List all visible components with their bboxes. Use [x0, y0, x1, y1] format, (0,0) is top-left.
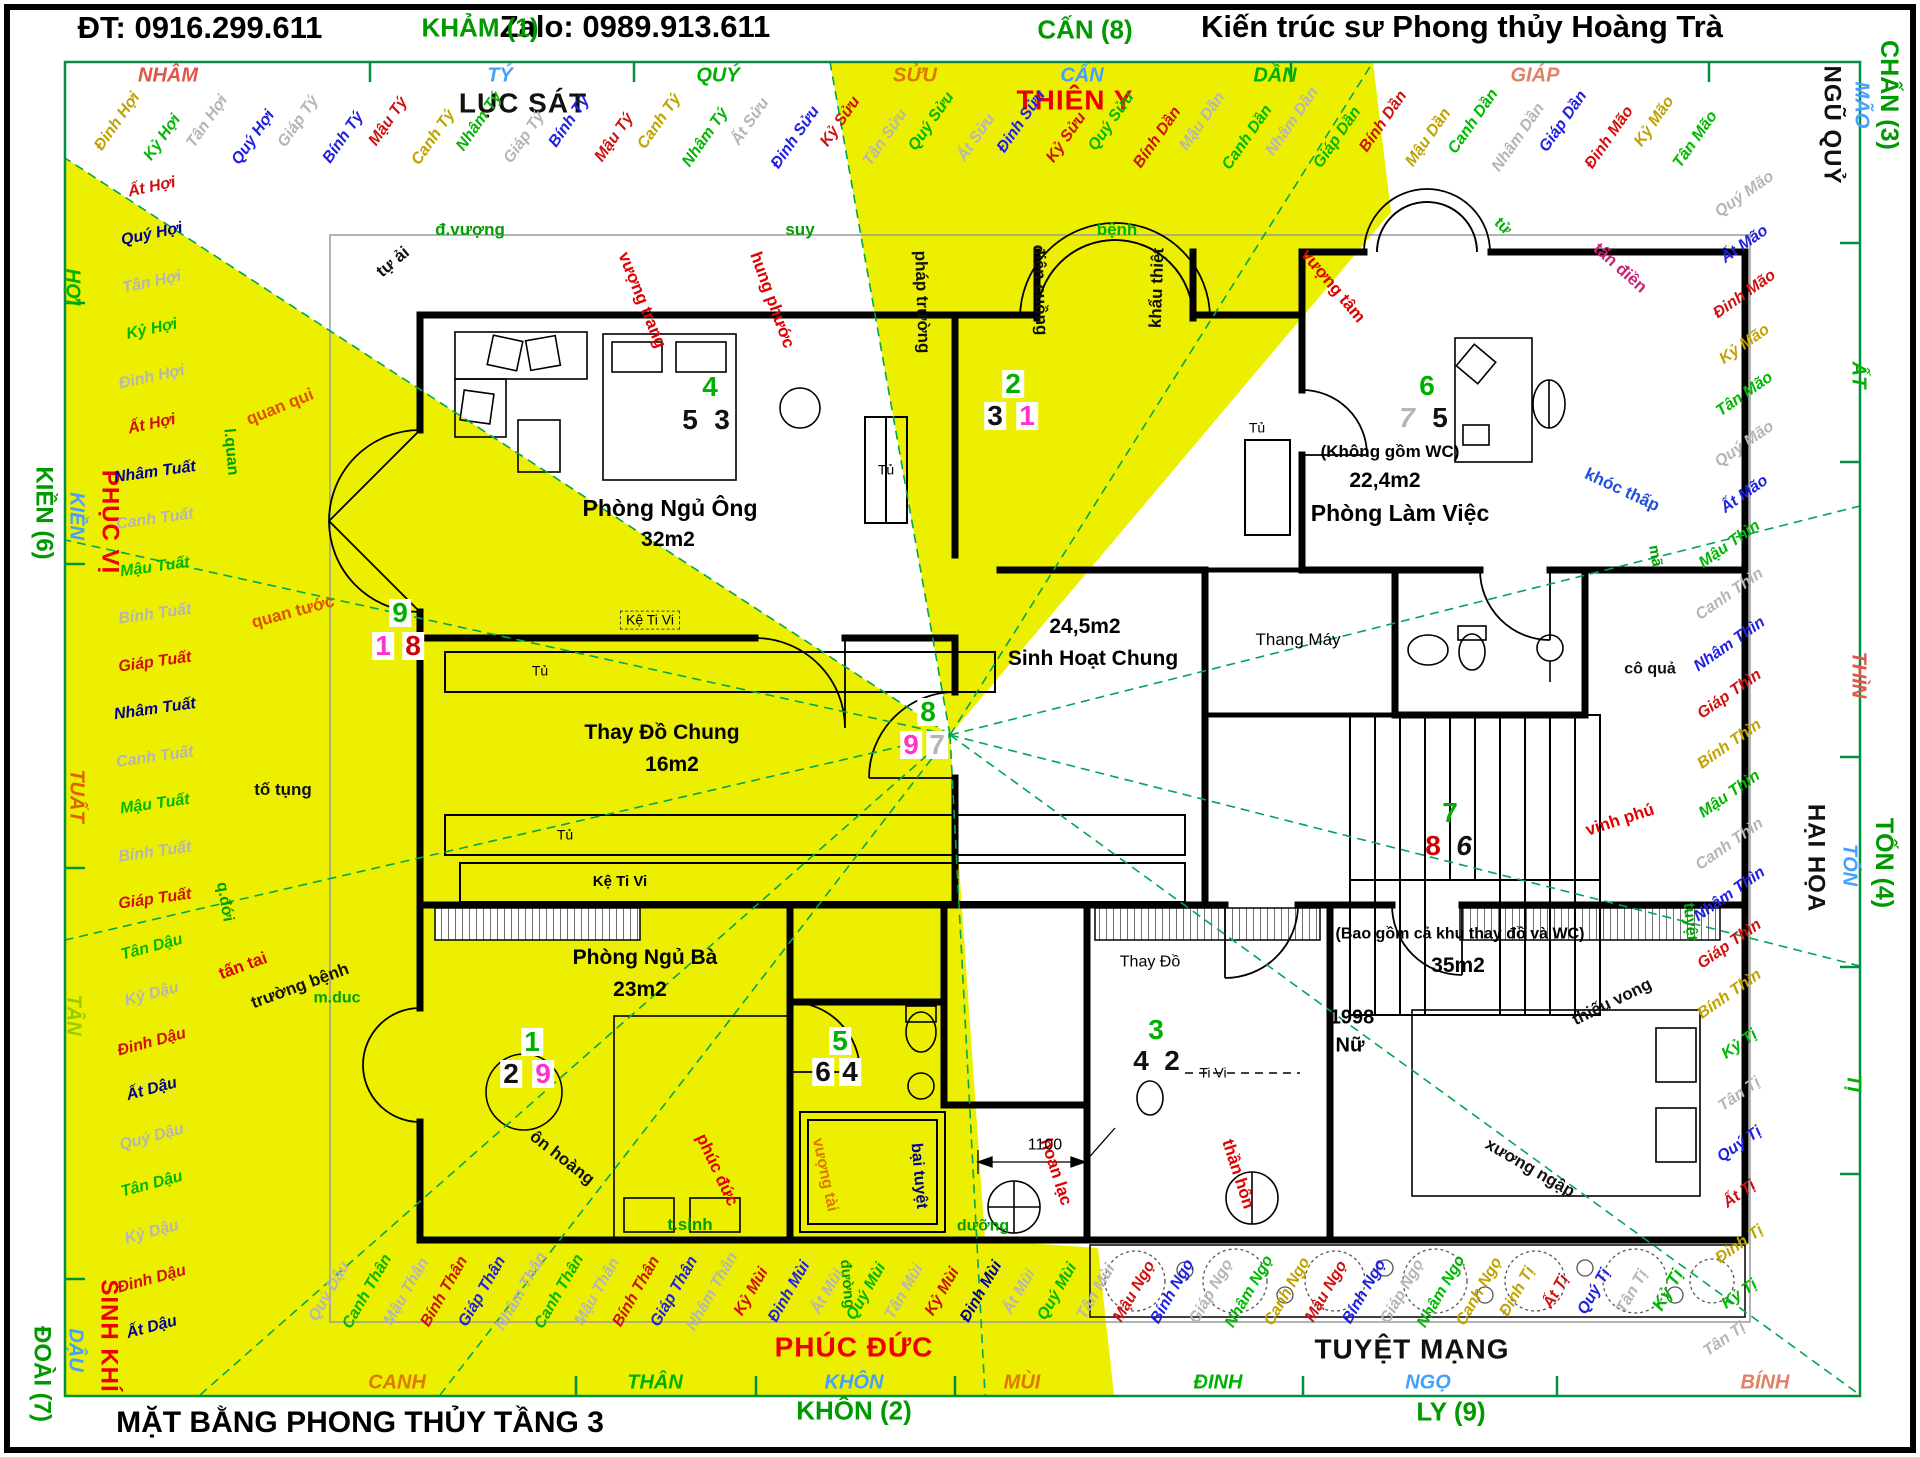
label-173: tố tụng	[254, 781, 312, 799]
label-221: 1100	[1028, 1138, 1062, 1155]
label-22: GIÁP	[1511, 66, 1560, 87]
label-200: 16m2	[645, 754, 699, 776]
label-224: 3	[711, 406, 733, 434]
label-202: 23m2	[613, 979, 667, 1001]
trigram-khon: KHÔN (2)	[796, 1397, 912, 1424]
label-222: 4	[699, 373, 721, 401]
fengshui-floorplan-page: ĐT: 0916.299.611 Zalo: 0989.913.611 Kiến…	[0, 0, 1920, 1457]
label-180: t.sinh	[667, 1216, 712, 1234]
zalo-number: Zalo: 0989.913.611	[500, 9, 771, 45]
label-34: THÂN	[627, 1373, 683, 1394]
sector-phuc-duc: PHÚC ĐỨC	[775, 1332, 934, 1361]
label-29: KIỀN	[66, 492, 87, 540]
label-244: 6	[812, 1058, 834, 1086]
label-233: 8	[402, 632, 424, 660]
label-231: 9	[389, 599, 411, 627]
label-1998: 1998	[1330, 1008, 1375, 1029]
floorplan-graphics	[0, 0, 1920, 1457]
label-26: TỐN	[1839, 844, 1860, 886]
label-246: 3	[1148, 1016, 1164, 1044]
label-225: 2	[1002, 370, 1024, 398]
trigram-can: CẤN (8)	[1037, 16, 1132, 43]
page-title: MẶT BẰNG PHONG THỦY TẦNG 3	[116, 1406, 604, 1440]
label-248: 2	[1164, 1047, 1180, 1075]
trigram-chan: CHẤN (3)	[1876, 40, 1902, 150]
label-25: THÌN	[1848, 652, 1869, 699]
trigram-doai: ĐOÀI (7)	[29, 1326, 54, 1422]
label-237: 7	[1442, 799, 1458, 827]
label-36: MÙI	[1004, 1373, 1041, 1394]
label-227: 1	[1016, 402, 1038, 430]
label-245: 4	[839, 1058, 861, 1086]
label-213: Nữ	[1336, 1036, 1365, 1057]
trigram-kien: KIỀN (6)	[31, 466, 56, 559]
label-161: đ.vượng	[435, 221, 505, 239]
label-206: 22,4m2	[1349, 470, 1420, 492]
label-33: CANH	[368, 1373, 426, 1394]
label-21: DẦN	[1253, 66, 1296, 87]
label-238: 8	[1425, 832, 1441, 860]
label-166: pháp trường	[911, 250, 932, 353]
label-236: 7	[926, 731, 948, 759]
label-239: 6	[1456, 832, 1472, 860]
label-219: Kệ Ti Vi	[620, 611, 680, 630]
label-38: NGỌ	[1405, 1373, 1451, 1394]
label-229: 7	[1399, 404, 1415, 432]
label-27: TỊ	[1843, 1074, 1864, 1092]
label-203: 24,5m2	[1049, 616, 1120, 638]
label-171: l.quan	[220, 428, 241, 476]
label-163: suy	[785, 221, 814, 239]
label-217: Tủ	[878, 463, 894, 478]
label-218: Tủ	[1249, 421, 1265, 436]
label-242: 9	[532, 1060, 554, 1088]
label-234: 8	[917, 698, 939, 726]
label-214: Ti Vi	[1199, 1066, 1226, 1081]
label-240: 1	[521, 1028, 543, 1056]
label-210: (Bao gồm cả khu thay đồ và WC)	[1336, 927, 1585, 944]
label-230: 5	[1432, 404, 1448, 432]
label-205: (Không gồm WC)	[1321, 443, 1460, 461]
label-232: 1	[372, 632, 394, 660]
label-37: ĐINH	[1194, 1373, 1243, 1394]
label-39: BÍNH	[1741, 1373, 1790, 1394]
trigram-ly: LY (9)	[1416, 1398, 1485, 1425]
label-183: đường	[837, 1259, 857, 1309]
label-241: 2	[500, 1060, 522, 1088]
label-211: 35m2	[1431, 955, 1485, 977]
room-phong-lam-viec: Phòng Làm Việc	[1311, 501, 1490, 525]
label-168: điên cuồng	[1030, 244, 1051, 335]
label-243: 5	[829, 1027, 851, 1055]
label-226: 3	[984, 402, 1006, 430]
room-thang-may: Thang Máy	[1255, 631, 1340, 649]
label-215: Tủ	[532, 664, 548, 679]
label-35: KHÔN	[825, 1373, 884, 1394]
label-16: NHÂM	[138, 66, 198, 87]
label-177: m.duc	[313, 991, 360, 1008]
label-184: dưỡng	[957, 1219, 1009, 1236]
sector-sinh-khi: SINH KHÍ	[96, 1279, 121, 1392]
room-thay-do-chung: Thay Đồ Chung	[584, 722, 739, 744]
label-235: 9	[900, 731, 922, 759]
sector-tuyet-mang: TUYỆT MẠNG	[1314, 1334, 1509, 1363]
room-phong-ngu-ong: Phòng Ngủ Ông	[582, 496, 757, 520]
room-thay-do: Thay Đồ	[1120, 955, 1180, 972]
label-169: khẩu thiệt	[1147, 248, 1168, 329]
label-28: HỢI	[62, 269, 83, 306]
label-196: mã	[1645, 544, 1664, 568]
label-31: TÂN	[63, 994, 84, 1035]
sector-hai-hoa: HẠI HỌA	[1803, 804, 1828, 912]
label-17: TÝ	[487, 66, 513, 87]
trigram-ton: TỐN (4)	[1871, 818, 1897, 908]
label-24: ẤT	[1848, 362, 1869, 389]
room-phong-ngu-ba: Phòng Ngủ Bà	[573, 947, 718, 969]
label-20: CẤN	[1060, 66, 1103, 87]
label-247: 4	[1133, 1047, 1149, 1075]
label-19: SỬU	[893, 66, 937, 87]
label-30: TUẤT	[66, 769, 87, 822]
architect-name: Kiến trúc sư Phong thủy Hoàng Trà	[1201, 9, 1723, 45]
label-220: Kệ Ti Vi	[593, 874, 647, 890]
trigram-kham: KHẢM (1)	[422, 14, 539, 41]
phone-number: ĐT: 0916.299.611	[78, 10, 323, 46]
label-32: DẬU	[65, 1328, 86, 1371]
label-23: MÃO	[1851, 82, 1872, 129]
label-228: 6	[1419, 372, 1435, 400]
label-216: Tủ	[557, 828, 573, 843]
label-189: tuyệt	[1679, 902, 1699, 942]
label-18: QUÝ	[696, 66, 739, 87]
label-195: cô quả	[1624, 662, 1676, 679]
room-sinh-hoat-chung: Sinh Hoạt Chung	[1008, 648, 1178, 670]
sector-ngu-quy: NGŨ QUỶ	[1819, 65, 1844, 184]
label-198: 32m2	[641, 529, 695, 551]
label-167: bệnh	[1097, 221, 1138, 239]
label-223: 5	[679, 406, 701, 434]
